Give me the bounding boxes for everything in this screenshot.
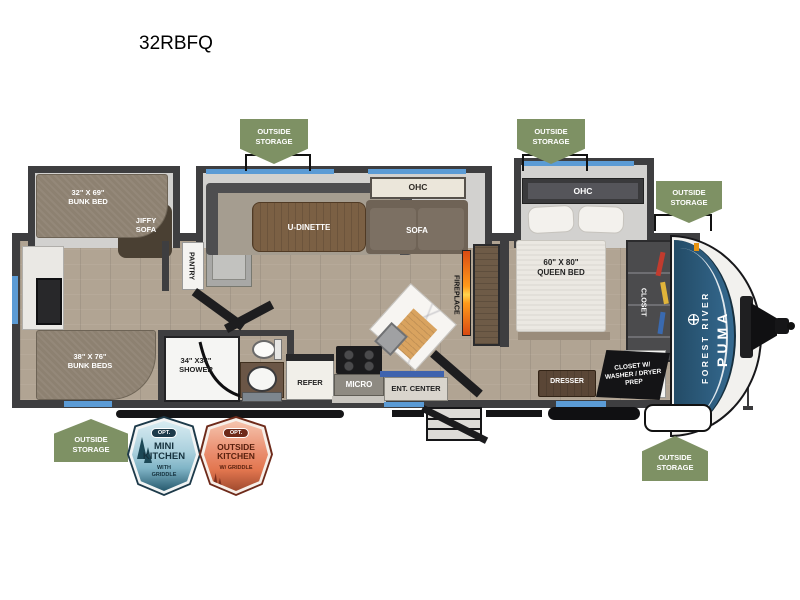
window-strip [64,401,112,407]
bed-platform [518,332,610,340]
wheel-bar [548,407,640,420]
globe-icon [688,314,699,325]
outside-kitchen-sub: W/ GRIDDLE [204,465,268,472]
step-rail [421,405,488,444]
hitch-jack-foot [743,406,753,410]
outside-storage-badge: OUTSIDE STORAGE [54,419,128,462]
grass-silhouette [208,473,222,487]
queen-bed-label: 60" X 80" QUEEN BED [516,258,606,277]
closet-shelf [628,304,674,306]
ent-center-label: ENT. CENTER [384,384,448,393]
hitch-a-frame [751,303,777,351]
bumper-bar [486,410,542,417]
mini-kitchen-name: MINI KITCHEN [132,442,196,462]
wall [162,241,169,291]
bedroom-ohc-label: OHC [522,186,644,196]
u-dinette-label: U-DINETTE [252,223,366,233]
outside-kitchen-name: OUTSIDE KITCHEN [204,443,268,462]
bath-sink [247,366,277,392]
brand-puma: PUMA [714,272,734,404]
outside-storage-badge: OUTSIDE STORAGE [642,436,708,481]
bumper-bar [116,410,344,418]
page-title: 32RBFQ [139,33,259,56]
hitch-ball-socket [787,322,795,330]
sofa-label: SOFA [366,226,468,236]
fireplace-glow [462,250,471,336]
pantry-label: PANTRY [186,244,194,288]
toilet-tank [274,339,282,360]
outside-kitchen-badge-ring: OPT. OUTSIDE KITCHEN W/ GRIDDLE [201,418,271,494]
queen-bed [516,240,606,332]
toilet [252,340,276,359]
mini-kitchen-sub: WITH GRIDDLE [132,465,196,478]
tv [36,278,62,325]
opt-pill: OPT. [223,428,249,438]
brand-forest-river: FOREST RIVER [700,258,714,418]
outside-kitchen-badge-face: OPT. OUTSIDE KITCHEN W/ GRIDDLE [204,421,268,491]
closet-shelf [628,272,674,274]
pillow [578,205,625,234]
outside-kitchen-badge: OPT. OUTSIDE KITCHEN W/ GRIDDLE [199,416,273,496]
fireplace-cabinet [473,244,500,346]
opt-pill: OPT. [151,428,177,438]
closet-shelf [628,336,674,338]
mini-kitchen-badge-face: OPT. MINI KITCHEN WITH GRIDDLE [132,421,196,491]
washer-dryer-label: CLOSET W/ WASHER / DRYER PREP [604,360,663,390]
micro-label: MICRO [334,380,384,390]
shower-label: 34" X34" SHOWER [166,356,226,374]
dresser-label: DRESSER [538,378,596,386]
window-strip [556,401,606,407]
refrigerator-top [286,354,334,361]
window-strip [384,402,424,407]
floorplan-page: 32RBFQ 32" X 69" BUNK BED JIFFY SOFA 38"… [0,0,800,600]
bath-vanity-base [242,392,282,402]
window-strip [12,276,18,324]
pillow [527,205,574,234]
micro-base [332,396,386,403]
bunk-bed-32-label: 32" X 69" BUNK BED [40,188,136,206]
bunk-beds-38-label: 38" X 76" BUNK BEDS [40,352,140,370]
mini-kitchen-badge: OPT. MINI KITCHEN WITH GRIDDLE [127,416,201,496]
entry-steps [426,407,482,441]
jiffy-sofa-label: JIFFY SOFA [120,216,172,234]
living-ohc-label: OHC [370,182,466,192]
refer-label: REFER [286,378,334,387]
closet-label: CLOSET [638,258,646,346]
stove [336,346,382,374]
wall [500,241,509,347]
storage-compartment [644,404,712,432]
window-strip [368,169,466,174]
marker-light [694,243,699,251]
washer-dryer-door: CLOSET W/ WASHER / DRYER PREP [596,350,670,400]
mini-kitchen-badge-ring: OPT. MINI KITCHEN WITH GRIDDLE [129,418,199,494]
bumper-bar [392,410,424,417]
